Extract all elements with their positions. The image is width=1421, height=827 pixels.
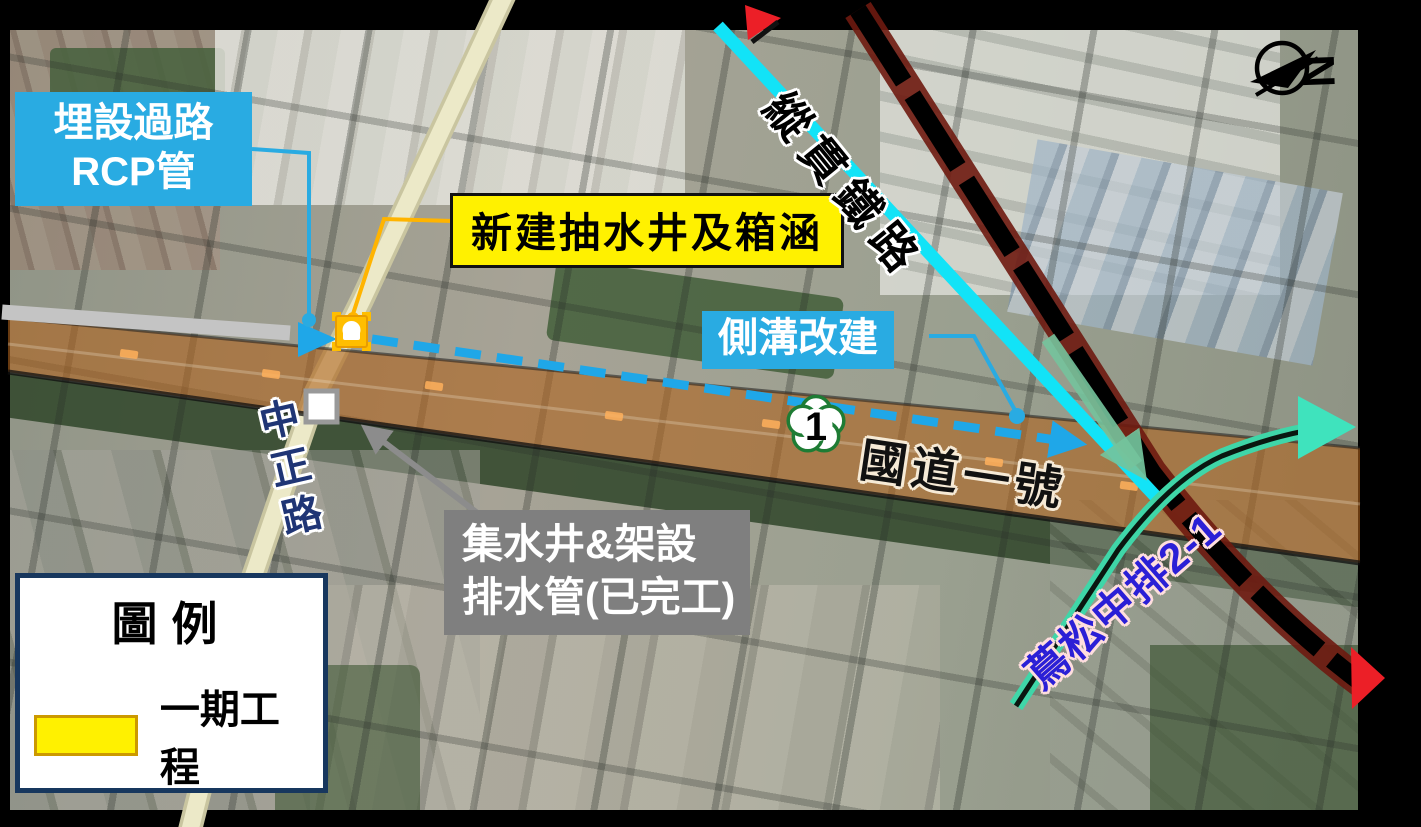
rcp-pipe-label-line2: RCP管 bbox=[15, 148, 252, 197]
phase1-label: 一期工程 bbox=[160, 677, 309, 793]
pump-well-marker bbox=[332, 312, 371, 351]
catchpit-marker bbox=[306, 391, 337, 422]
catchpit-label: 集水井&架設 排水管(已完工) bbox=[444, 510, 750, 635]
catchpit-leader-arrow bbox=[368, 430, 480, 515]
compass-north-letter: N bbox=[1291, 53, 1346, 88]
construction-plan-map: 1 埋設過路 RCP管 新建抽水井及箱涵 側溝改建 集水井&架設 排水管(已完工… bbox=[0, 0, 1421, 827]
catchpit-label-line1: 集水井&架設 bbox=[462, 518, 750, 571]
rcp-leader-line bbox=[252, 149, 309, 317]
new-pump-well-label: 新建抽水井及箱涵 bbox=[450, 193, 844, 268]
legend-item-phase2: 二期工程 bbox=[34, 816, 309, 827]
side-ditch-label: 側溝改建 bbox=[702, 311, 894, 369]
legend-item-phase1: 一期工程 bbox=[34, 677, 309, 793]
catchpit-label-line2: 排水管(已完工) bbox=[462, 571, 750, 624]
side-ditch-leader-dot bbox=[1009, 408, 1025, 424]
rcp-pipe-label: 埋設過路 RCP管 bbox=[15, 92, 252, 206]
phase1-swatch bbox=[34, 715, 138, 756]
legend-title: 圖例 bbox=[34, 588, 309, 654]
rcp-leader-dot bbox=[302, 313, 316, 327]
shield-number: 1 bbox=[805, 405, 827, 449]
red-arrow-south-icon bbox=[1351, 647, 1385, 709]
rcp-pipe-label-line1: 埋設過路 bbox=[15, 99, 252, 148]
legend: 圖例 一期工程 二期工程 bbox=[15, 573, 328, 793]
phase2-label: 二期工程 bbox=[160, 816, 309, 827]
side-ditch-leader-line bbox=[929, 336, 1016, 412]
